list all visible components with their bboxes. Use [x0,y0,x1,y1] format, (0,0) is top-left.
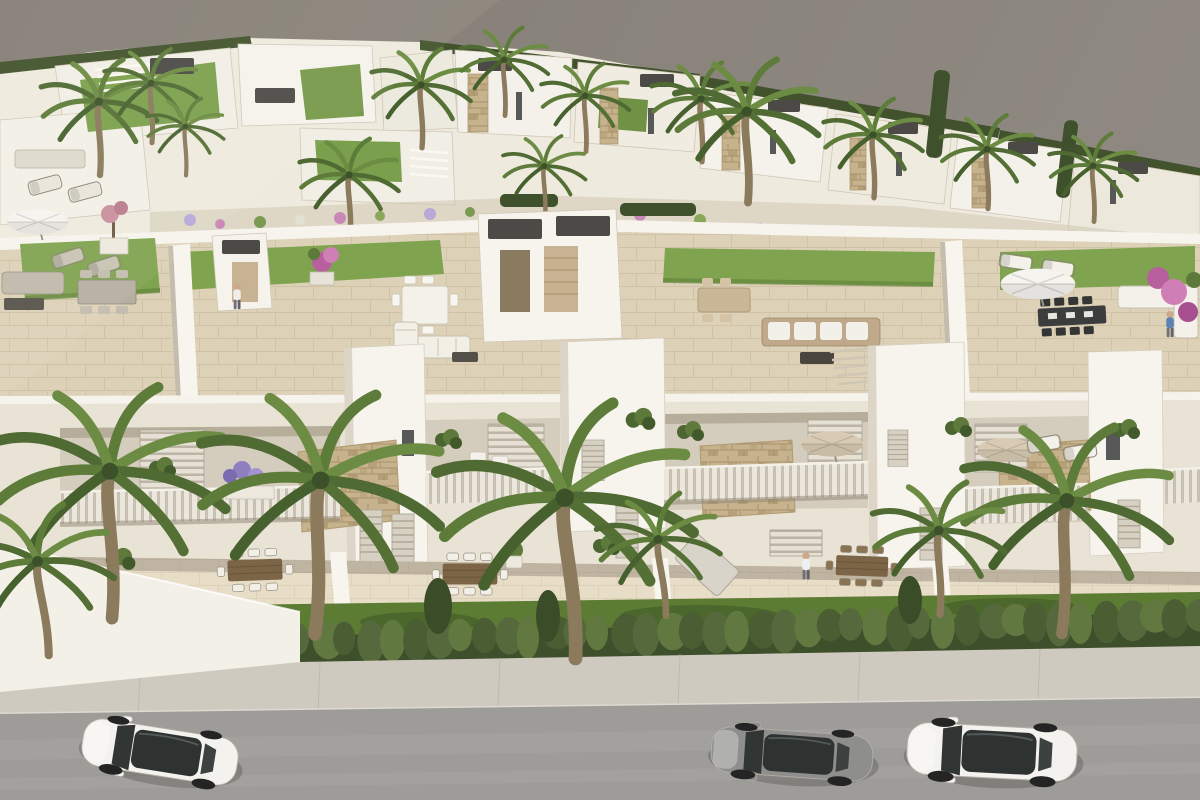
development-render [0,0,1200,800]
road [0,698,1200,800]
render-image [0,0,1200,800]
pergola-slat-door [770,530,822,556]
stair-bulkhead-center [478,209,622,342]
stair-bulkhead-left [212,233,272,311]
